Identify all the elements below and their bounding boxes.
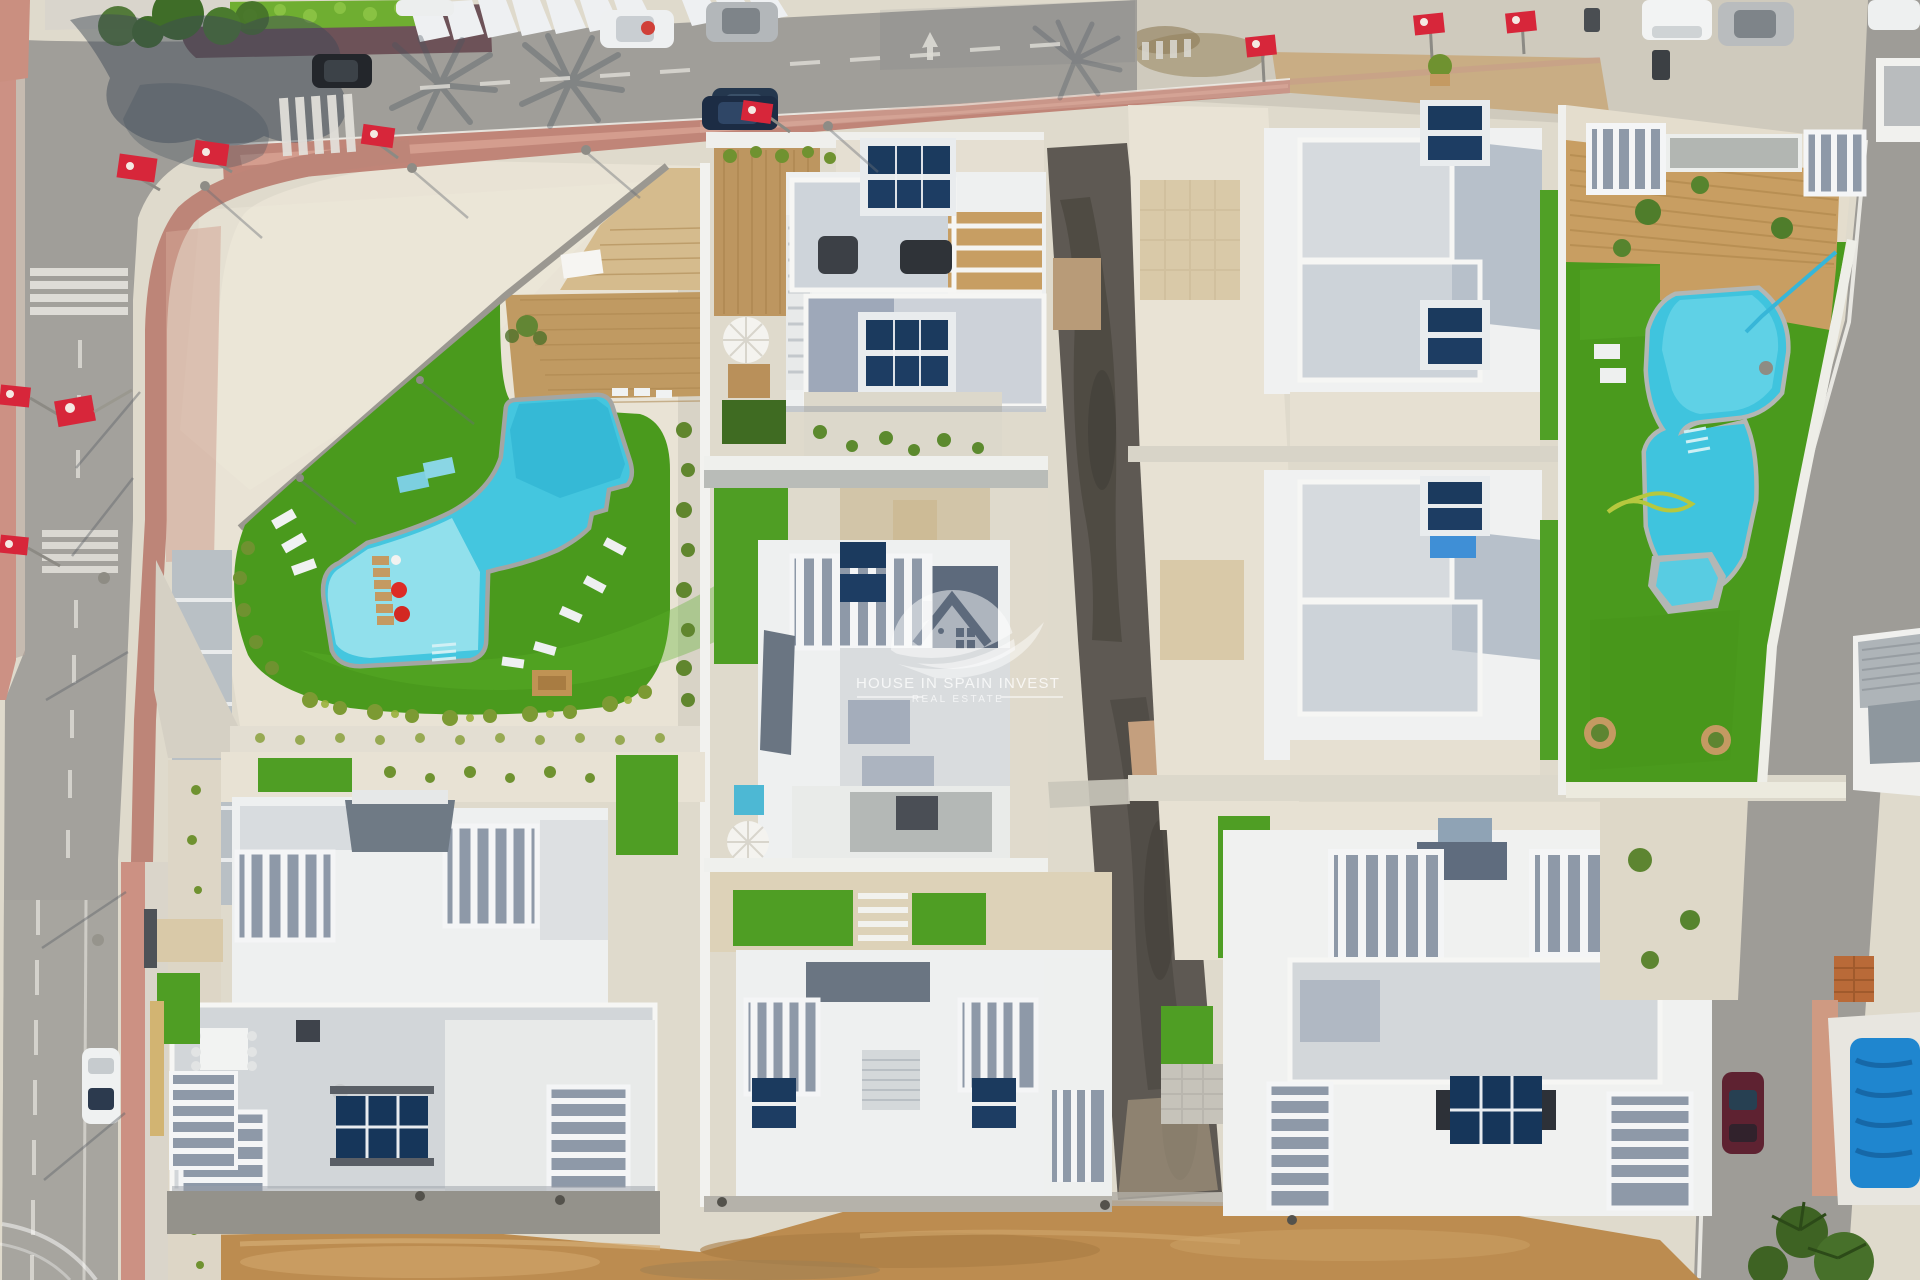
svg-text:HOUSE IN SPAIN INVEST: HOUSE IN SPAIN INVEST [856,675,1060,692]
svg-text:REAL ESTATE: REAL ESTATE [912,694,1004,705]
